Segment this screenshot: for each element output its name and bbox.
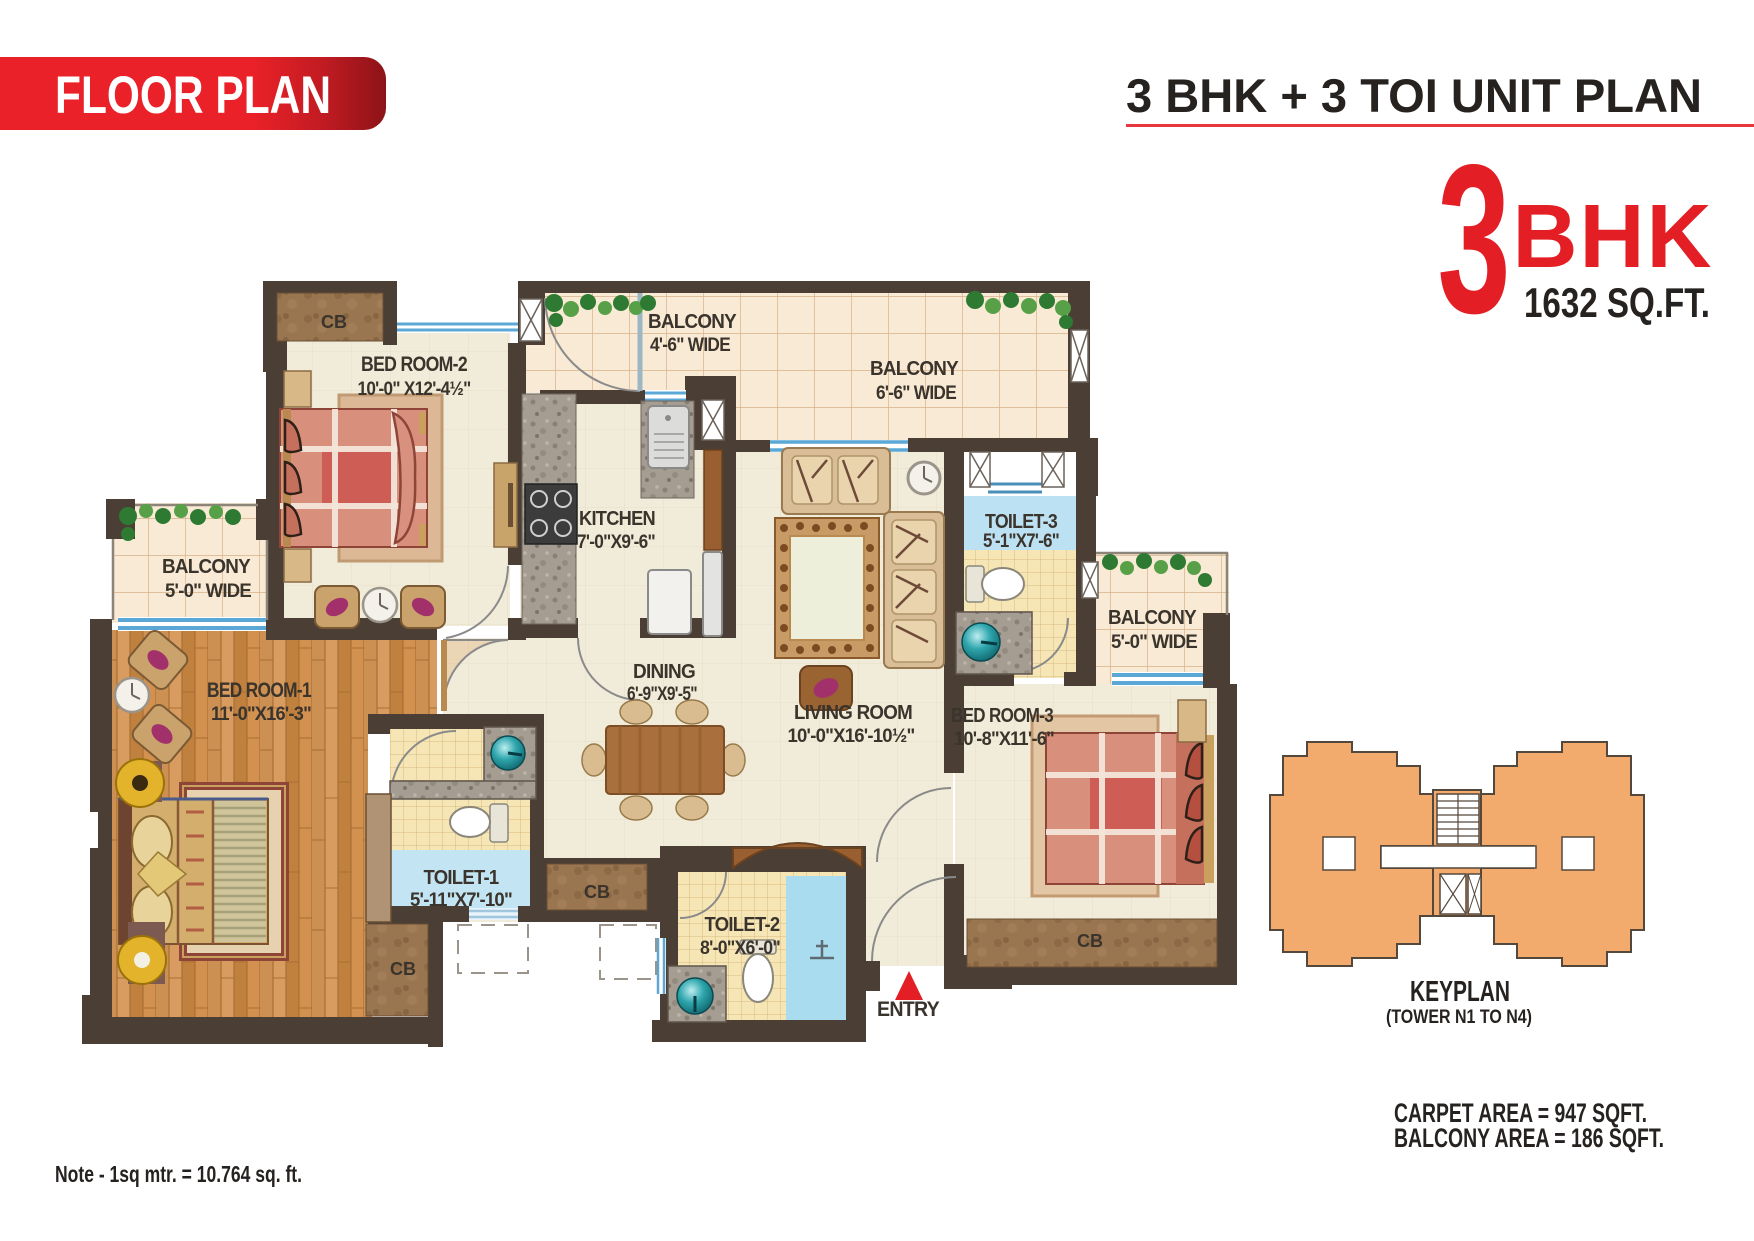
svg-text:10'-8"X11'-6": 10'-8"X11'-6" — [954, 728, 1054, 750]
svg-text:FLOOR PLAN: FLOOR PLAN — [55, 66, 331, 125]
svg-text:BED ROOM-2: BED ROOM-2 — [361, 353, 467, 376]
svg-text:TOILET-1: TOILET-1 — [424, 866, 499, 889]
svg-text:ENTRY: ENTRY — [877, 998, 940, 1021]
svg-text:CB: CB — [321, 312, 347, 332]
svg-text:5'-1"X7'-6": 5'-1"X7'-6" — [983, 530, 1059, 552]
svg-text:5'-0" WIDE: 5'-0" WIDE — [165, 580, 252, 602]
svg-text:CB: CB — [1077, 931, 1103, 951]
svg-text:11'-0"X16'-3": 11'-0"X16'-3" — [211, 703, 311, 725]
svg-text:DINING: DINING — [633, 660, 695, 683]
svg-text:BALCONY: BALCONY — [1108, 606, 1197, 629]
svg-text:CB: CB — [584, 882, 610, 902]
svg-text:3 BHK + 3 TOI UNIT PLAN: 3 BHK + 3 TOI UNIT PLAN — [1126, 69, 1702, 122]
svg-text:6'-9"X9'-5": 6'-9"X9'-5" — [627, 683, 697, 705]
svg-text:BHK: BHK — [1513, 187, 1714, 287]
svg-text:LIVING ROOM: LIVING ROOM — [794, 701, 912, 724]
svg-text:BALCONY: BALCONY — [648, 310, 737, 333]
svg-text:BALCONY: BALCONY — [162, 555, 251, 578]
svg-text:(TOWER N1 TO N4): (TOWER N1 TO N4) — [1386, 1007, 1532, 1028]
svg-text:BED ROOM-3: BED ROOM-3 — [951, 704, 1053, 727]
svg-text:10'-0"X16'-10½": 10'-0"X16'-10½" — [788, 725, 915, 747]
svg-text:6'-6" WIDE: 6'-6" WIDE — [876, 382, 957, 404]
svg-text:8'-0"X6'-0": 8'-0"X6'-0" — [700, 937, 780, 959]
svg-text:3: 3 — [1437, 121, 1510, 358]
svg-text:5'-11"X7'-10": 5'-11"X7'-10" — [410, 889, 512, 911]
svg-text:1632 SQ.FT.: 1632 SQ.FT. — [1524, 279, 1710, 326]
svg-text:BALCONY: BALCONY — [870, 357, 959, 380]
svg-text:4'-6" WIDE: 4'-6" WIDE — [650, 334, 731, 356]
svg-text:CB: CB — [390, 959, 416, 979]
svg-text:Note - 1sq mtr. = 10.764 sq. f: Note - 1sq mtr. = 10.764 sq. ft. — [55, 1161, 302, 1187]
svg-text:7'-0"X9'-6": 7'-0"X9'-6" — [577, 531, 655, 553]
svg-text:BALCONY AREA = 186 SQFT.: BALCONY AREA = 186 SQFT. — [1394, 1123, 1664, 1153]
svg-text:KEYPLAN: KEYPLAN — [1410, 976, 1510, 1008]
svg-text:10'-0" X12'-4½": 10'-0" X12'-4½" — [358, 378, 471, 400]
svg-text:KITCHEN: KITCHEN — [579, 507, 655, 530]
svg-text:BED ROOM-1: BED ROOM-1 — [207, 679, 312, 702]
svg-text:5'-0" WIDE: 5'-0" WIDE — [1111, 631, 1198, 653]
svg-text:TOILET-2: TOILET-2 — [705, 913, 780, 936]
